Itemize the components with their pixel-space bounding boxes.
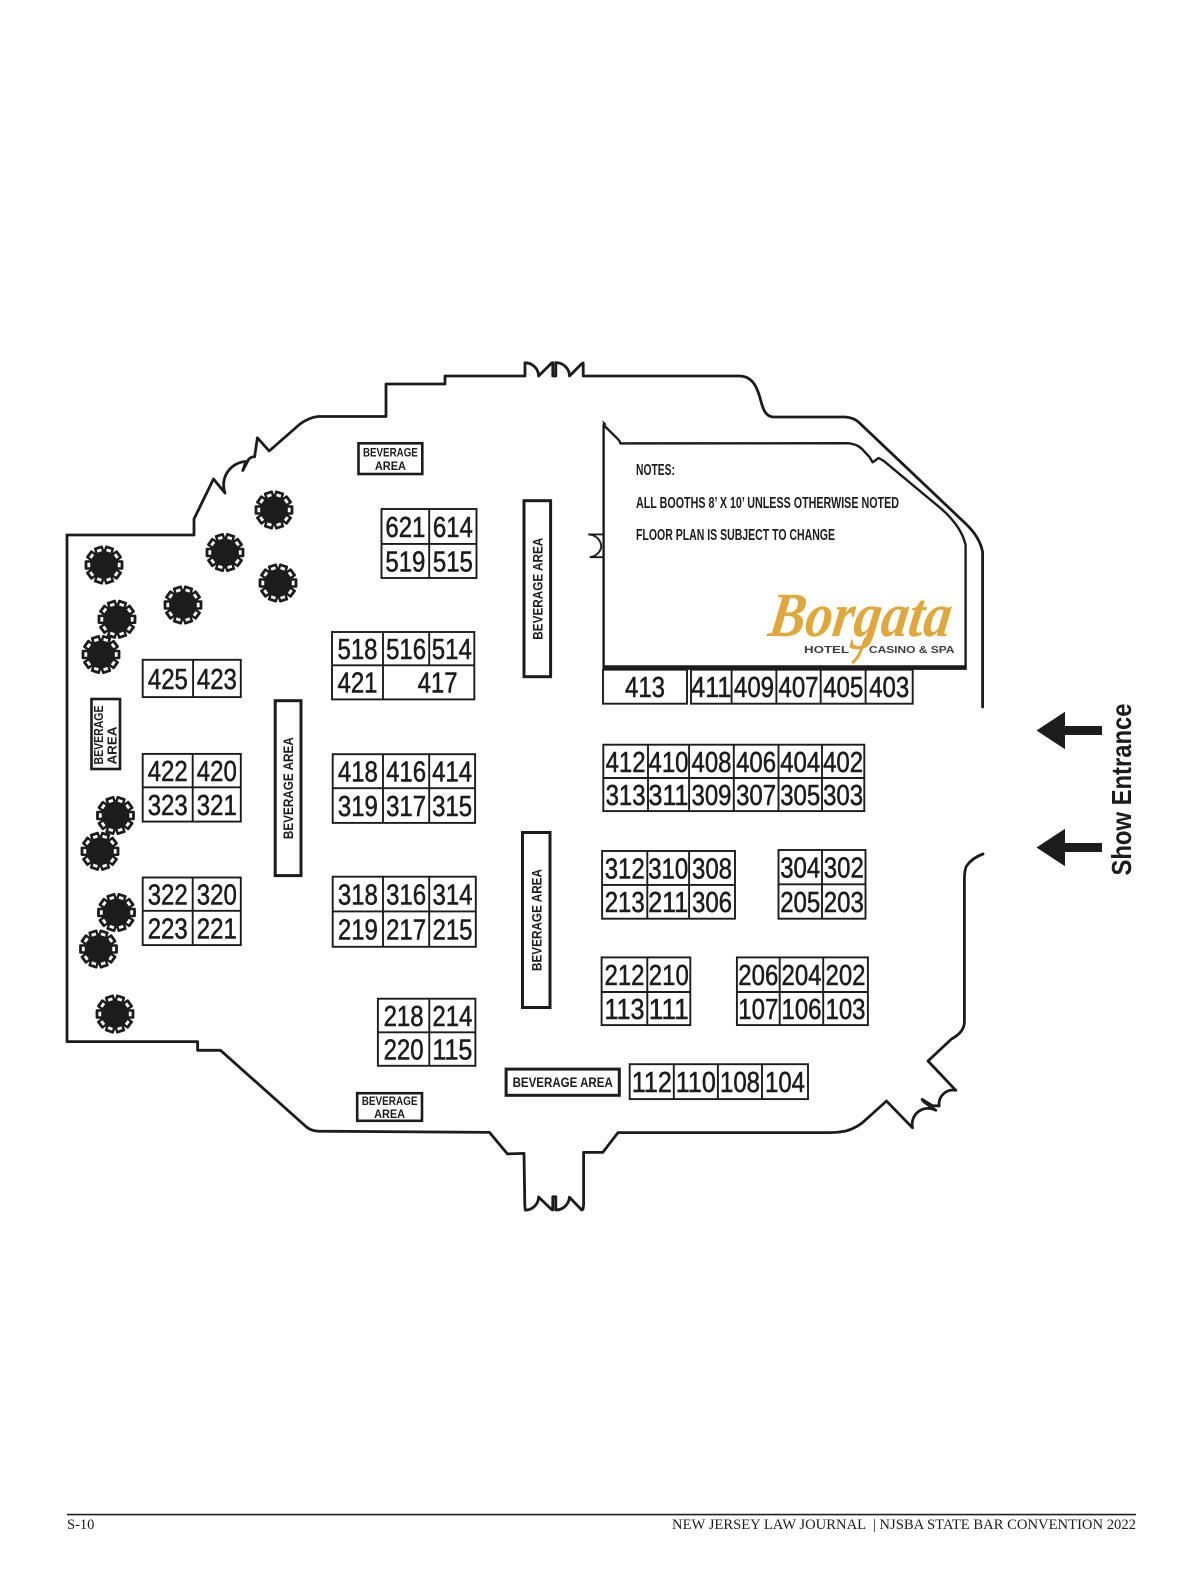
svg-text:206: 206 <box>738 960 778 992</box>
svg-text:409: 409 <box>734 672 774 704</box>
svg-text:215: 215 <box>433 915 473 947</box>
svg-text:108: 108 <box>720 1067 760 1099</box>
svg-text:204: 204 <box>782 960 822 992</box>
svg-text:218: 218 <box>384 1001 424 1033</box>
svg-text:S-10: S-10 <box>67 1517 94 1533</box>
svg-text:210: 210 <box>649 960 689 992</box>
svg-text:NOTES:: NOTES: <box>636 462 675 479</box>
svg-text:516: 516 <box>386 634 426 666</box>
svg-text:307: 307 <box>736 780 776 812</box>
svg-text:111: 111 <box>649 994 689 1026</box>
svg-text:BEVERAGE AREA: BEVERAGE AREA <box>513 1075 613 1090</box>
svg-text:104: 104 <box>765 1067 805 1099</box>
svg-text:217: 217 <box>386 915 426 947</box>
svg-text:115: 115 <box>432 1035 472 1067</box>
svg-text:AREA: AREA <box>374 1108 406 1121</box>
svg-text:614: 614 <box>433 512 473 544</box>
svg-text:Borgata: Borgata <box>764 580 957 650</box>
svg-text:410: 410 <box>649 747 689 779</box>
svg-text:113: 113 <box>605 994 645 1026</box>
svg-text:213: 213 <box>605 887 645 919</box>
svg-text:107: 107 <box>738 994 778 1026</box>
svg-text:408: 408 <box>692 747 732 779</box>
svg-text:BEVERAGE AREA: BEVERAGE AREA <box>281 737 296 839</box>
svg-text:205: 205 <box>780 887 820 919</box>
svg-text:411: 411 <box>691 672 731 704</box>
svg-text:AREA: AREA <box>375 460 407 473</box>
svg-text:416: 416 <box>386 757 426 789</box>
svg-text:405: 405 <box>823 672 863 704</box>
svg-text:NEW JERSEY LAW JOURNAL | NJSB: NEW JERSEY LAW JOURNAL | NJSBA STATE BAR… <box>672 1517 1136 1533</box>
svg-text:312: 312 <box>605 853 645 885</box>
svg-text:305: 305 <box>780 780 820 812</box>
svg-text:313: 313 <box>606 780 646 812</box>
svg-text:425: 425 <box>148 664 188 696</box>
svg-text:621: 621 <box>385 512 425 544</box>
svg-text:417: 417 <box>418 668 458 700</box>
svg-text:203: 203 <box>824 887 864 919</box>
svg-text:423: 423 <box>197 664 237 696</box>
svg-text:319: 319 <box>338 791 378 823</box>
svg-text:ALL BOOTHS 8’ X 10’ UNLESS OTH: ALL BOOTHS 8’ X 10’ UNLESS OTHERWISE NOT… <box>636 495 899 512</box>
svg-text:FLOOR PLAN IS SUBJECT TO CHANG: FLOOR PLAN IS SUBJECT TO CHANGE <box>636 527 835 544</box>
svg-text:BEVERAGE AREA: BEVERAGE AREA <box>530 538 545 640</box>
svg-text:212: 212 <box>605 960 645 992</box>
svg-text:402: 402 <box>823 747 863 779</box>
svg-text:317: 317 <box>386 791 426 823</box>
svg-text:221: 221 <box>197 913 237 945</box>
svg-text:110: 110 <box>676 1067 716 1099</box>
svg-text:AREA: AREA <box>104 726 119 764</box>
svg-text:422: 422 <box>148 756 188 788</box>
svg-text:322: 322 <box>148 880 188 912</box>
svg-text:320: 320 <box>197 880 237 912</box>
svg-text:223: 223 <box>148 913 188 945</box>
svg-text:404: 404 <box>780 747 820 779</box>
svg-text:HOTEL: HOTEL <box>804 644 850 656</box>
svg-text:CASINO & SPA: CASINO & SPA <box>869 644 955 656</box>
svg-text:518: 518 <box>338 634 378 666</box>
svg-text:412: 412 <box>606 747 646 779</box>
svg-text:308: 308 <box>692 853 732 885</box>
svg-text:303: 303 <box>823 780 863 812</box>
svg-text:315: 315 <box>432 791 472 823</box>
svg-text:310: 310 <box>648 853 688 885</box>
svg-text:202: 202 <box>826 960 866 992</box>
svg-text:309: 309 <box>692 780 732 812</box>
svg-text:403: 403 <box>869 672 909 704</box>
svg-text:406: 406 <box>736 747 776 779</box>
svg-text:306: 306 <box>692 887 732 919</box>
svg-text:Show Entrance: Show Entrance <box>1106 704 1137 876</box>
svg-text:106: 106 <box>782 994 822 1026</box>
svg-text:515: 515 <box>433 546 473 578</box>
svg-text:112: 112 <box>632 1067 672 1099</box>
svg-text:323: 323 <box>148 790 188 822</box>
svg-text:311: 311 <box>649 780 689 812</box>
svg-text:302: 302 <box>824 853 864 885</box>
svg-text:316: 316 <box>386 879 426 911</box>
svg-text:321: 321 <box>197 790 237 822</box>
svg-text:418: 418 <box>338 757 378 789</box>
svg-text:421: 421 <box>338 668 378 700</box>
svg-text:BEVERAGE: BEVERAGE <box>362 1095 418 1108</box>
svg-text:BEVERAGE: BEVERAGE <box>363 446 418 459</box>
svg-text:318: 318 <box>338 879 378 911</box>
svg-text:413: 413 <box>625 672 665 704</box>
svg-text:420: 420 <box>197 756 237 788</box>
svg-text:211: 211 <box>648 887 688 919</box>
svg-text:414: 414 <box>432 757 472 789</box>
svg-text:304: 304 <box>780 853 820 885</box>
svg-text:407: 407 <box>779 672 819 704</box>
svg-text:214: 214 <box>432 1001 472 1033</box>
svg-text:519: 519 <box>385 546 425 578</box>
svg-text:BEVERAGE AREA: BEVERAGE AREA <box>529 869 544 971</box>
svg-text:219: 219 <box>338 915 378 947</box>
svg-text:220: 220 <box>384 1035 424 1067</box>
svg-text:514: 514 <box>432 634 472 666</box>
svg-text:103: 103 <box>826 994 866 1026</box>
svg-text:314: 314 <box>433 879 473 911</box>
